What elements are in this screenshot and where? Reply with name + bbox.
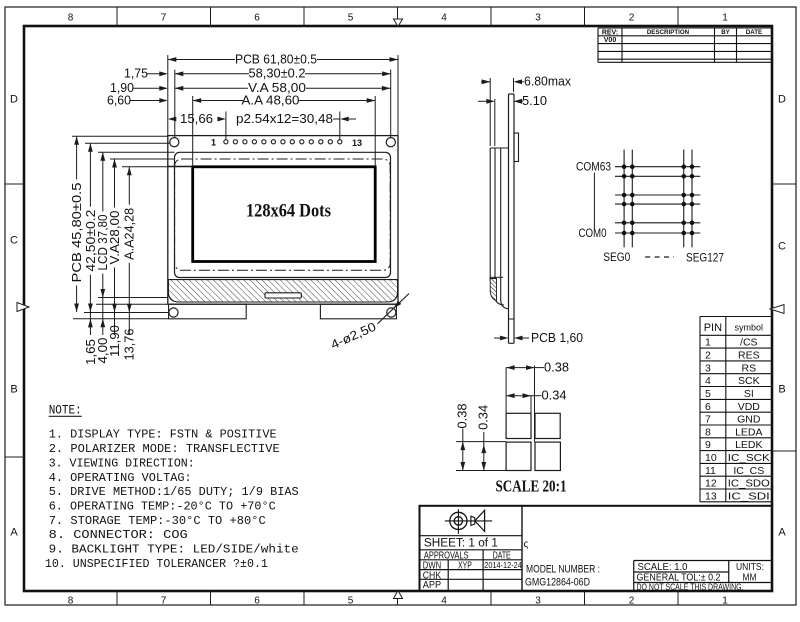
svg-text:COM0: COM0	[579, 226, 607, 240]
svg-text:12: 12	[705, 478, 717, 490]
svg-text:1: 1	[705, 337, 711, 349]
svg-text:8: 8	[705, 426, 711, 438]
svg-text:RS: RS	[742, 362, 757, 374]
svg-text:0.38: 0.38	[456, 403, 470, 428]
svg-text:A.A 48,60: A.A 48,60	[242, 93, 300, 107]
svg-text:3: 3	[705, 362, 711, 374]
svg-text:4: 4	[441, 13, 447, 24]
svg-text:V.A28,00: V.A28,00	[108, 210, 122, 264]
svg-text:/CS: /CS	[740, 337, 758, 349]
svg-text:A: A	[10, 527, 18, 539]
svg-text:DO NOT SCALE THIS DRAWING.: DO NOT SCALE THIS DRAWING.	[637, 582, 744, 592]
svg-text:LEDA: LEDA	[735, 426, 762, 438]
svg-text:15,66: 15,66	[180, 112, 213, 126]
svg-text:5: 5	[705, 388, 711, 400]
svg-text:6,60: 6,60	[107, 93, 131, 107]
svg-text:10. UNSPECIFIED TOLERANCER ?±0: 10. UNSPECIFIED TOLERANCER ?±0.1	[45, 557, 268, 571]
svg-text:8. CONNECTOR: COG: 8. CONNECTOR: COG	[49, 528, 188, 542]
svg-text:1. DISPLAY TYPE: FSTN & POSITI: 1. DISPLAY TYPE: FSTN & POSITIVE	[49, 428, 277, 442]
svg-text:IC_SDO: IC_SDO	[728, 478, 770, 490]
svg-text:3: 3	[535, 13, 541, 24]
svg-text:5.10: 5.10	[522, 94, 547, 108]
svg-text:2014-12-24: 2014-12-24	[484, 561, 522, 570]
svg-text:9. BACKLIGHT TYPE: LED/SIDE/: 9. BACKLIGHT TYPE: LED/SIDE/white	[49, 543, 299, 557]
svg-text:A.A24,28: A.A24,28	[123, 208, 137, 260]
svg-text:B: B	[778, 384, 785, 396]
svg-text:10: 10	[705, 452, 717, 464]
svg-text:RES: RES	[738, 350, 760, 362]
svg-text:VDD: VDD	[738, 401, 761, 413]
svg-text:MM: MM	[743, 572, 757, 584]
svg-text:0.34: 0.34	[542, 389, 567, 403]
svg-text:A: A	[778, 527, 786, 539]
svg-text:6.80max: 6.80max	[524, 75, 572, 89]
svg-text:13: 13	[352, 138, 362, 148]
svg-text:SI: SI	[744, 388, 754, 400]
svg-text:SHEET: 1 of 1: SHEET: 1 of 1	[424, 538, 498, 550]
svg-text:PCB 1,60: PCB 1,60	[531, 331, 583, 345]
svg-text:13: 13	[705, 490, 717, 502]
svg-text:D: D	[778, 94, 786, 106]
svg-text:6: 6	[254, 13, 260, 24]
svg-text:GND: GND	[737, 414, 761, 426]
svg-text:2: 2	[705, 350, 711, 362]
svg-text:IC_SCK: IC_SCK	[728, 452, 770, 464]
svg-text:7: 7	[161, 596, 167, 607]
svg-text:V00: V00	[604, 37, 617, 44]
svg-text:DESCRIPTION: DESCRIPTION	[647, 29, 690, 36]
svg-text:6: 6	[254, 596, 260, 607]
svg-text:IC_CS: IC_CS	[733, 465, 764, 477]
svg-text:SCK: SCK	[738, 375, 760, 387]
svg-text:0.34: 0.34	[477, 405, 491, 430]
svg-text:MODEL NUMBER :: MODEL NUMBER :	[526, 564, 600, 576]
svg-text:7. STORAGE TEMP:-30°C TO +80°C: 7. STORAGE TEMP:-30°C TO +80°C	[49, 514, 266, 528]
svg-text:REV:: REV:	[602, 29, 618, 36]
svg-text:symbol: symbol	[735, 323, 764, 333]
svg-text:6. OPERATING TEMP:-20°C TO +70: 6. OPERATING TEMP:-20°C TO +70°C	[49, 499, 276, 513]
svg-text:SCALE: 1.0: SCALE: 1.0	[638, 561, 688, 573]
svg-text:4. OPERATING VOLTAG:: 4. OPERATING VOLTAG:	[49, 471, 192, 485]
svg-text:0.38: 0.38	[544, 361, 569, 375]
svg-text:PCB 61,80±0.5: PCB 61,80±0.5	[235, 52, 317, 66]
svg-text:ς: ς	[524, 539, 529, 550]
svg-text:GMG12864-06D: GMG12864-06D	[525, 577, 590, 589]
svg-text:PCB 45,80±0.5: PCB 45,80±0.5	[70, 182, 84, 282]
svg-text:11,90: 11,90	[108, 325, 122, 357]
svg-text:2: 2	[629, 13, 635, 24]
svg-text:D: D	[10, 94, 18, 106]
svg-text:SEG127: SEG127	[686, 251, 724, 265]
svg-text:1: 1	[722, 13, 728, 24]
svg-text:6: 6	[705, 401, 711, 413]
svg-text:COM63: COM63	[576, 160, 611, 174]
svg-text:1: 1	[722, 596, 728, 607]
svg-text:58,30±0.2: 58,30±0.2	[249, 67, 306, 81]
svg-text:4: 4	[705, 375, 711, 387]
svg-text:NOTE:: NOTE:	[49, 404, 82, 418]
svg-text:2: 2	[629, 596, 635, 607]
svg-text:PIN: PIN	[704, 322, 722, 334]
svg-text:C: C	[778, 241, 786, 253]
svg-text:7: 7	[161, 13, 167, 24]
svg-text:3. VIEWING DIRECTION:: 3. VIEWING DIRECTION:	[49, 456, 195, 470]
svg-text:LEDK: LEDK	[735, 439, 762, 451]
svg-text:7: 7	[705, 414, 711, 426]
svg-text:XYP: XYP	[458, 560, 472, 572]
svg-text:BY: BY	[721, 29, 730, 36]
svg-text:DATE: DATE	[746, 29, 762, 36]
svg-text:5. DRIVE METHOD:1/65 DUTY; 1/9: 5. DRIVE METHOD:1/65 DUTY; 1/9 BIAS	[49, 485, 299, 499]
svg-text:p2.54x12=30,48: p2.54x12=30,48	[236, 112, 333, 126]
svg-text:APP: APP	[423, 579, 441, 591]
svg-text:DATE: DATE	[493, 550, 511, 561]
svg-text:11: 11	[705, 465, 716, 477]
svg-text:IC_SDI: IC_SDI	[728, 490, 770, 502]
svg-text:2. POLARIZER MODE: TRANSFLECTI: 2. POLARIZER MODE: TRANSFLECTIVE	[49, 442, 280, 456]
svg-text:5: 5	[348, 596, 354, 607]
svg-text:4: 4	[441, 596, 447, 607]
svg-text:1: 1	[211, 138, 216, 148]
svg-text:B: B	[10, 384, 17, 396]
svg-text:128x64 Dots: 128x64 Dots	[246, 201, 331, 222]
svg-text:9: 9	[705, 439, 711, 451]
svg-text:8: 8	[68, 596, 74, 607]
svg-text:5: 5	[348, 13, 354, 24]
svg-text:3: 3	[535, 596, 541, 607]
svg-text:SCALE 20:1: SCALE 20:1	[496, 477, 567, 496]
svg-text:1,75: 1,75	[124, 67, 148, 81]
svg-text:8: 8	[68, 13, 74, 24]
svg-text:SEG0: SEG0	[603, 250, 630, 264]
svg-text:C: C	[10, 235, 18, 247]
svg-text:13,76: 13,76	[123, 328, 137, 360]
